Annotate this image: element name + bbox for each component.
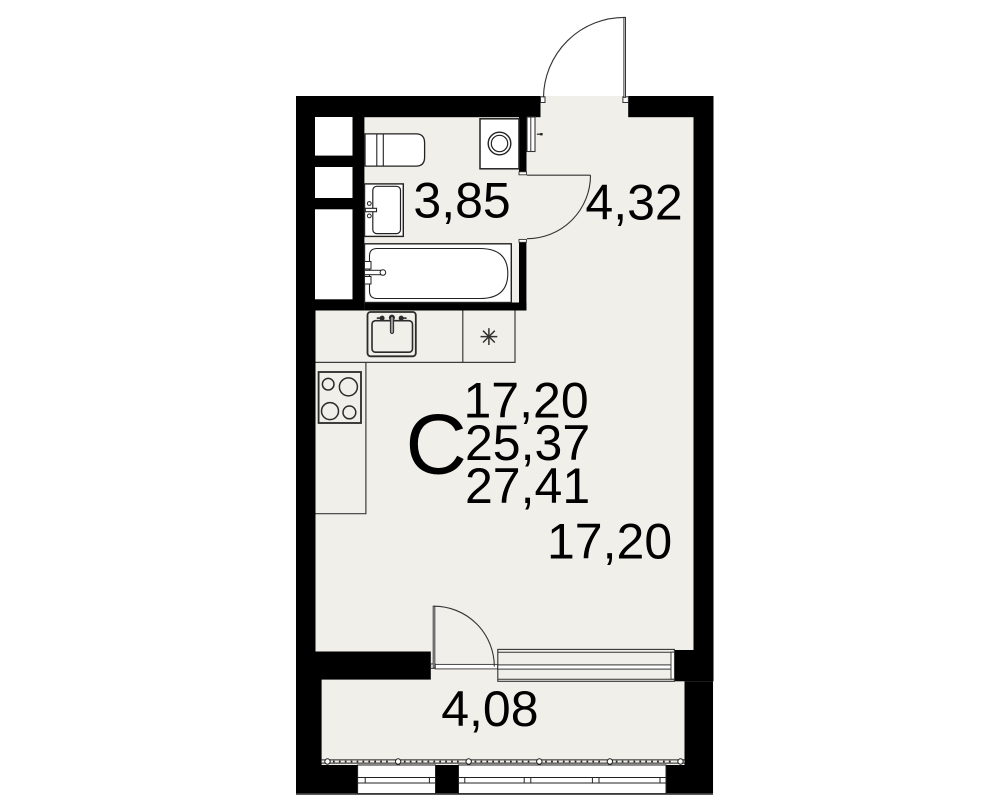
svg-text:27,41: 27,41 xyxy=(465,458,590,514)
svg-text:17,20: 17,20 xyxy=(547,513,672,569)
svg-text:3,85: 3,85 xyxy=(413,173,510,229)
svg-text:С: С xyxy=(406,397,467,492)
svg-text:4,32: 4,32 xyxy=(585,175,682,231)
svg-text:4,08: 4,08 xyxy=(441,681,538,737)
